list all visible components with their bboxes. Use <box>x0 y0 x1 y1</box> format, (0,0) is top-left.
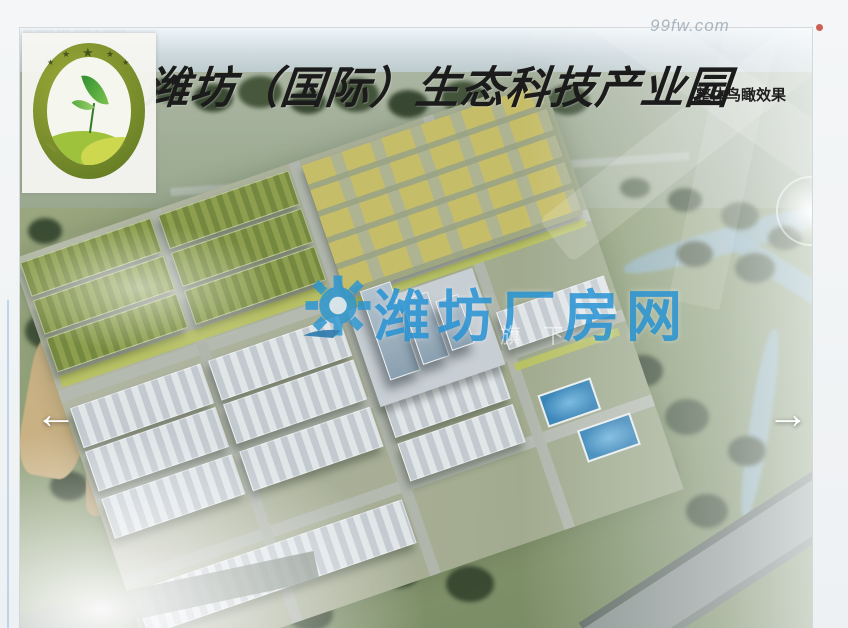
gear-icon <box>298 268 378 348</box>
star-icon: ★ <box>62 50 70 59</box>
view-type-label: 整体鸟瞰效果 <box>696 84 786 105</box>
logo-inner <box>47 57 131 165</box>
mist <box>20 223 280 353</box>
star-icon: ★ <box>122 59 129 67</box>
center-watermark-subtext: 旗下 <box>500 320 586 350</box>
prev-arrow-button[interactable]: ← <box>28 386 84 442</box>
eco-logo: ★ ★ ★ ★ ★ ···· ····· ···· <box>22 33 156 193</box>
page: 99fw.com <box>0 0 848 628</box>
carousel-photo: ·· ···· ··· ···· · ····· 潍坊（国际）生态科技产业园 整… <box>20 28 812 628</box>
site-watermark-dot-icon <box>816 24 823 31</box>
star-icon: ★ <box>47 59 54 67</box>
mist <box>20 428 430 628</box>
star-icon: ★ <box>106 50 114 59</box>
logo-ring: ★ ★ ★ ★ ★ ···· ····· ···· <box>33 43 145 179</box>
photo-title: 潍坊（国际）生态科技产业园 <box>143 52 750 116</box>
next-arrow-button[interactable]: → <box>760 386 812 442</box>
site-watermark: 99fw.com <box>650 16 830 36</box>
left-edge-line <box>7 300 9 628</box>
